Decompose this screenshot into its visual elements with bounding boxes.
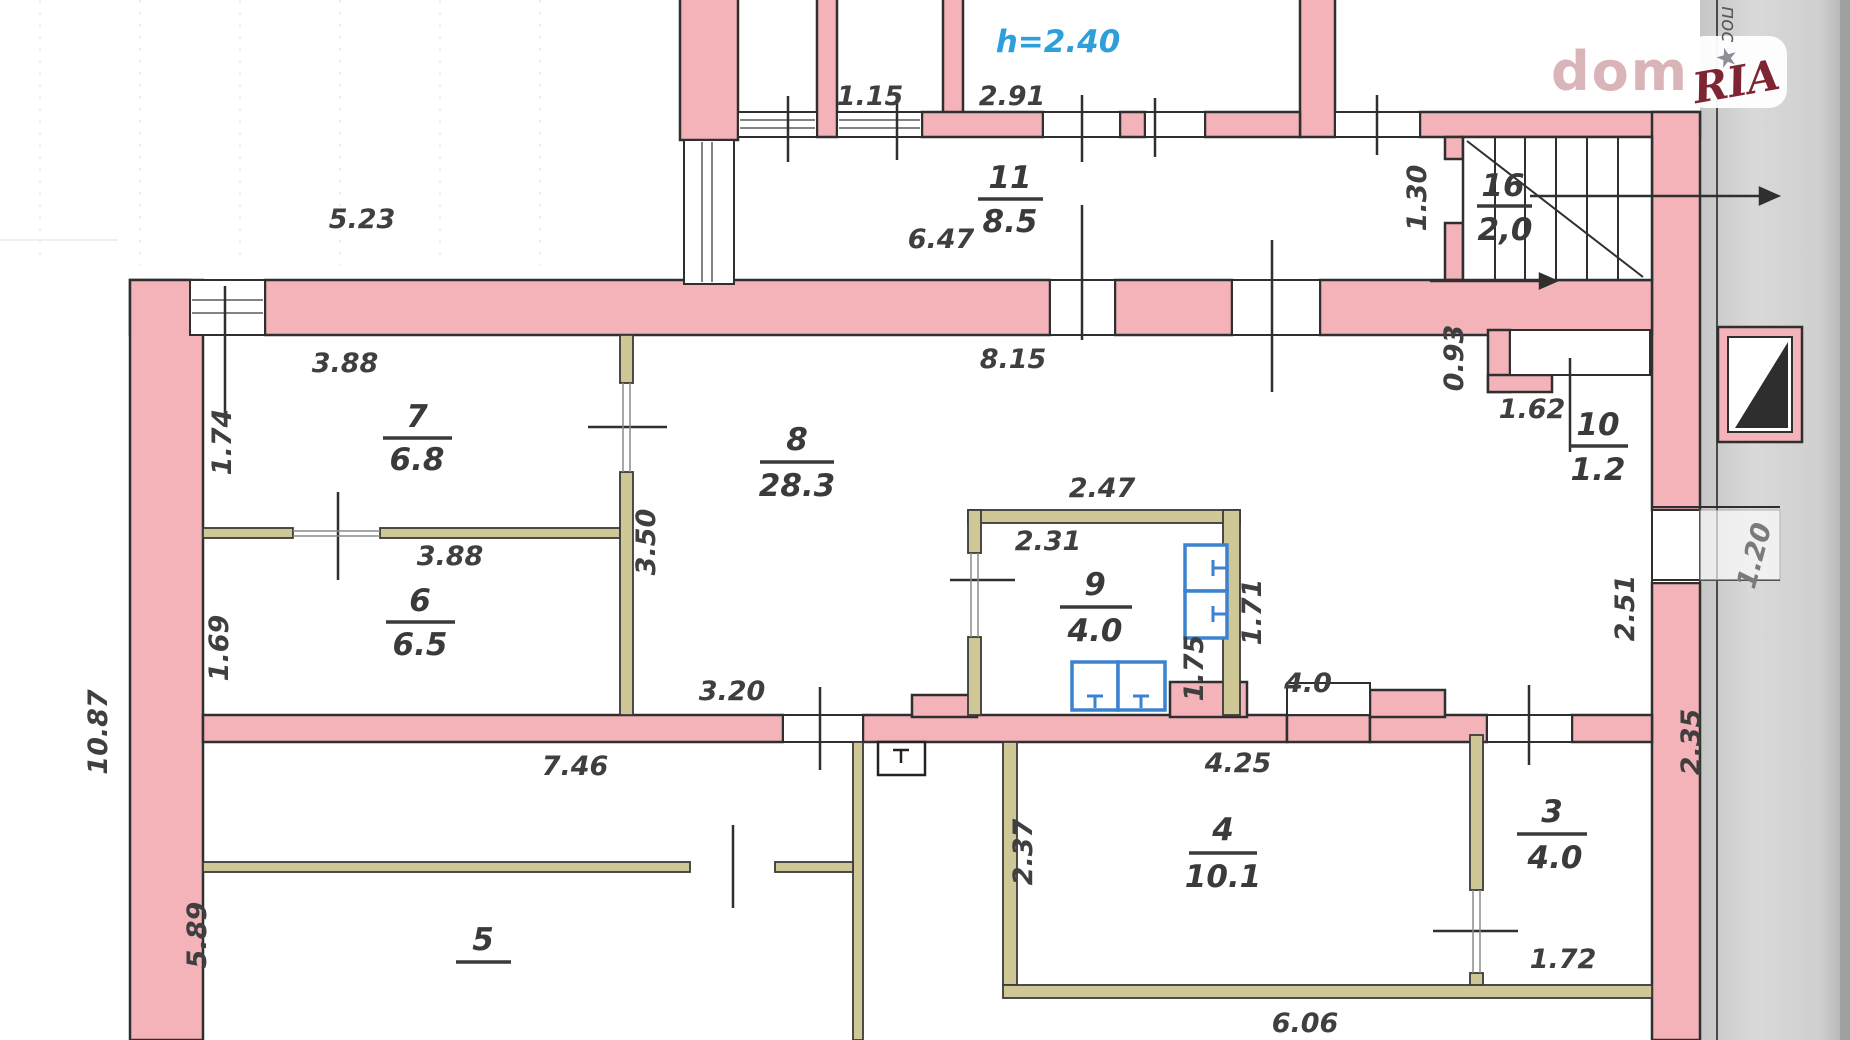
dim-2-37: 2.37 [1008, 818, 1039, 885]
dim-3-88-b: 3.88 [417, 541, 484, 572]
page-edge-text: пос [1717, 6, 1741, 42]
svg-text:9: 9 [1084, 567, 1106, 603]
dim-4-25: 4.25 [1204, 748, 1272, 779]
svg-text:6: 6 [409, 583, 431, 619]
svg-text:11: 11 [988, 160, 1031, 196]
room-label-10: 10 1.2 [1570, 407, 1628, 488]
svg-text:16: 16 [1481, 168, 1524, 204]
svg-text:4.0: 4.0 [1527, 840, 1583, 876]
partition-layer [203, 335, 1652, 1040]
stairs-icon [1463, 137, 1652, 280]
dim-1-71: 1.71 [1237, 579, 1268, 646]
svg-text:10.1: 10.1 [1185, 859, 1262, 895]
floor-plan: 5.23 1.15 2.91 6.47 h=2.40 1.30 8.15 3.8… [0, 0, 1850, 1040]
dim-2-31: 2.31 [1015, 526, 1082, 557]
scan-grid-artifacts [0, 0, 540, 265]
dim-8-15: 8.15 [980, 344, 1047, 375]
svg-text:10: 10 [1576, 407, 1619, 443]
svg-text:4.0: 4.0 [1067, 613, 1123, 649]
dim-5-89: 5.89 [182, 902, 213, 969]
svg-text:4: 4 [1211, 812, 1234, 848]
ceiling-height-note: h=2.40 [996, 24, 1121, 60]
dim-7-46: 7.46 [542, 751, 609, 782]
room-label-8: 8 28.3 [759, 422, 836, 504]
room-label-6: 6 6.5 [386, 583, 455, 663]
dim-6-47: 6.47 [908, 224, 975, 255]
watermark-dom: dom [1551, 40, 1689, 103]
dim-2-47: 2.47 [1069, 473, 1136, 504]
wall-sink-icon [878, 742, 925, 775]
dim-0-93: 0.93 [1439, 325, 1470, 392]
svg-text:8: 8 [786, 422, 808, 458]
toilet-icon [1185, 545, 1228, 638]
watermark-band: dom RIA ★ [1443, 36, 1787, 113]
svg-text:6.5: 6.5 [393, 627, 448, 663]
svg-text:5: 5 [472, 922, 494, 958]
dim-1-72: 1.72 [1530, 944, 1597, 975]
room-label-4: 4 10.1 [1185, 812, 1262, 895]
sink-pair-icon [1072, 662, 1165, 710]
room-label-11: 11 8.5 [978, 160, 1043, 240]
svg-text:6.8: 6.8 [390, 442, 445, 478]
dim-10-87: 10.87 [83, 689, 114, 775]
dim-1-15: 1.15 [837, 81, 904, 112]
dim-6-06: 6.06 [1272, 1008, 1339, 1039]
dim-2-51: 2.51 [1610, 575, 1641, 642]
room-label-5: 5 [456, 922, 511, 962]
svg-text:2,0: 2,0 [1478, 212, 1533, 248]
svg-text:3: 3 [1541, 794, 1563, 830]
floor-plan-canvas: 5.23 1.15 2.91 6.47 h=2.40 1.30 8.15 3.8… [0, 0, 1850, 1040]
dim-3-88-a: 3.88 [312, 348, 379, 379]
dim-1-69: 1.69 [204, 615, 235, 682]
dim-4-0: 4.0 [1283, 668, 1332, 699]
svg-text:28.3: 28.3 [759, 468, 836, 504]
dimension-ticks [225, 95, 1570, 931]
dim-2-91: 2.91 [979, 81, 1046, 112]
svg-text:1.2: 1.2 [1571, 452, 1626, 488]
dim-3-50: 3.50 [631, 509, 662, 576]
svg-text:7: 7 [406, 399, 428, 435]
dim-1-75: 1.75 [1179, 635, 1210, 702]
dim-1-62: 1.62 [1499, 394, 1566, 425]
dim-2-35: 2.35 [1676, 709, 1707, 776]
svg-text:8.5: 8.5 [983, 204, 1038, 240]
dim-1-30: 1.30 [1402, 165, 1433, 232]
page-edge-shadow [1840, 0, 1850, 1040]
room-label-9: 9 4.0 [1060, 567, 1132, 649]
dim-1-74: 1.74 [207, 409, 238, 476]
dim-5-23: 5.23 [329, 204, 396, 235]
dim-3-20: 3.20 [699, 676, 766, 707]
room-label-3: 3 4.0 [1517, 794, 1587, 876]
room-label-7: 7 6.8 [383, 399, 452, 478]
